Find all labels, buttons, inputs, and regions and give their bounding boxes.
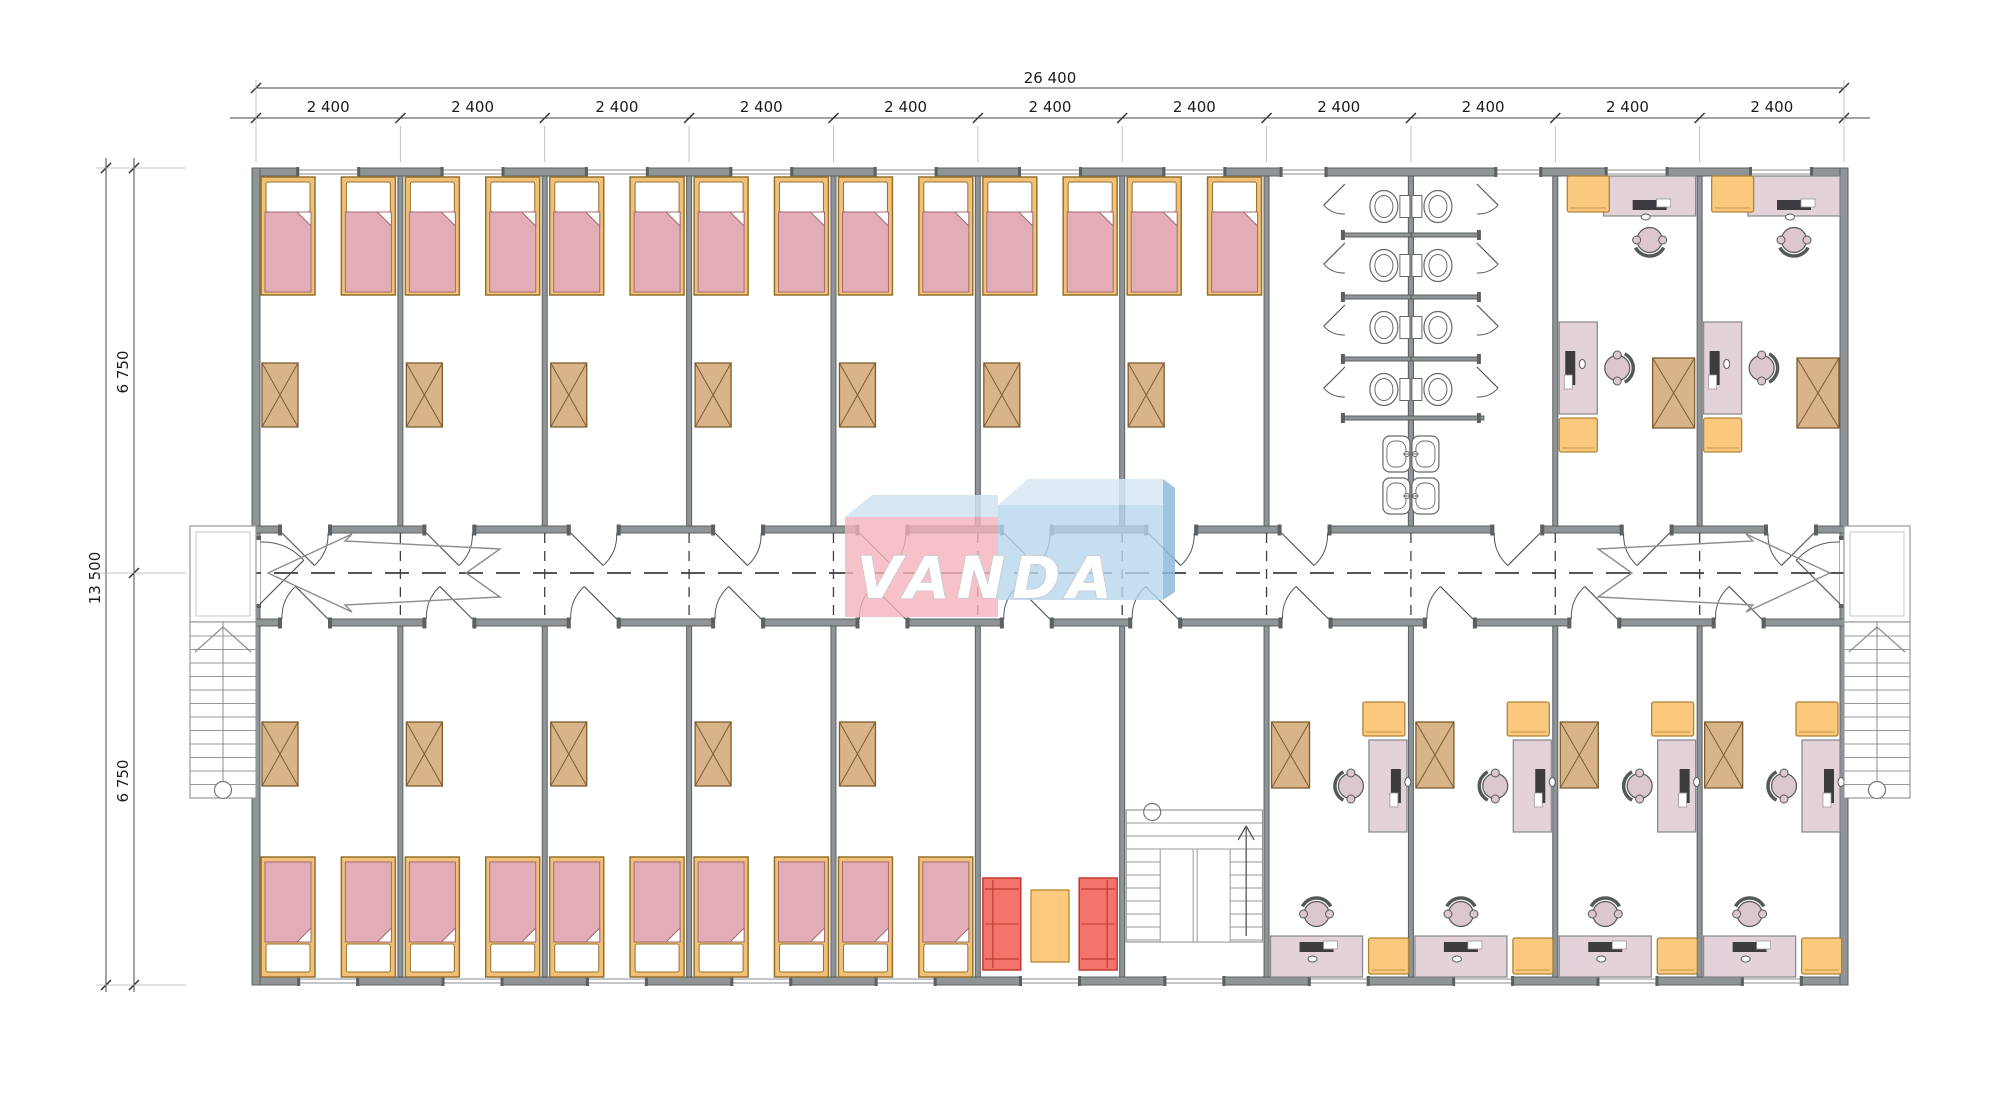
logo-left-top-face (845, 495, 998, 517)
bed (486, 177, 540, 295)
door-swing (1324, 184, 1345, 214)
storage-cabinet (1802, 938, 1842, 974)
wardrobe (1272, 722, 1310, 788)
bed (630, 857, 684, 977)
bed (486, 857, 540, 977)
door-swing (426, 586, 472, 619)
computer (1679, 769, 1700, 807)
bed (774, 857, 828, 977)
dimension-label: 6 750 (114, 351, 132, 394)
partition-wall (398, 626, 403, 977)
logo-right-top-face (998, 479, 1163, 505)
coffee-table (1031, 890, 1069, 962)
office-chair (1633, 228, 1667, 257)
bathroom-central-wall (1408, 176, 1413, 526)
window (1162, 167, 1226, 177)
door-swing (1477, 184, 1498, 214)
wardrobe (262, 722, 298, 786)
dimension-label: 2 400 (1462, 98, 1505, 116)
bed (630, 177, 684, 295)
bed (261, 857, 315, 977)
partition-wall (1408, 626, 1413, 977)
bed (1208, 177, 1262, 295)
dimension-label: 6 750 (114, 760, 132, 803)
window (441, 167, 505, 177)
desk (1704, 322, 1742, 414)
partition-wall (831, 626, 836, 977)
window (1163, 976, 1225, 986)
partition-wall (398, 176, 403, 526)
wardrobe (695, 722, 731, 786)
stall-partition (1343, 416, 1484, 420)
door-swing (282, 586, 328, 619)
external-staircase-left (190, 526, 256, 799)
bed (838, 177, 892, 295)
office-chair (1777, 228, 1811, 257)
office-chair (1749, 351, 1778, 385)
desk (1802, 740, 1840, 832)
partition-wall (1120, 176, 1125, 526)
bed (1127, 177, 1181, 295)
sofa (983, 878, 1021, 970)
storage-cabinet (1704, 418, 1742, 452)
door-swing (1494, 533, 1540, 566)
dimension-label: 2 400 (1750, 98, 1793, 116)
stall-partition (1343, 295, 1411, 299)
dimension-label: 2 400 (1173, 98, 1216, 116)
wardrobe (839, 722, 875, 786)
office-chair (1300, 898, 1334, 926)
bed (341, 857, 395, 977)
window (1494, 167, 1542, 177)
stall-partition (1343, 357, 1411, 361)
dimension-label: 13 500 (86, 552, 104, 605)
bed (550, 857, 604, 977)
partition-wall (1697, 176, 1702, 526)
door-swing (1324, 367, 1345, 397)
dimension-label: 2 400 (884, 98, 927, 116)
door-swing (426, 533, 472, 566)
computer (1777, 199, 1815, 220)
storage-cabinet (1567, 176, 1609, 212)
door-swing (1282, 533, 1328, 566)
dimension-label: 2 400 (1029, 98, 1072, 116)
partition-wall (1264, 176, 1269, 526)
bed (694, 857, 748, 977)
door-swing (1477, 243, 1498, 273)
storage-cabinet (1657, 938, 1697, 974)
office-chair (1444, 898, 1478, 926)
partition-wall (1697, 626, 1702, 977)
partition-wall (975, 626, 980, 977)
bed (261, 177, 315, 295)
partition-wall (1120, 626, 1125, 977)
desk (1559, 322, 1597, 414)
window (874, 167, 938, 177)
office-chair (1605, 351, 1634, 385)
external-staircase-right (1844, 526, 1910, 799)
watermark-text: VANDA (857, 544, 1119, 612)
storage-cabinet (1712, 176, 1754, 212)
wardrobe (1560, 722, 1598, 788)
wardrobe (1705, 722, 1743, 788)
partition-wall (1553, 626, 1558, 977)
wardrobe (262, 363, 298, 427)
bed (405, 857, 459, 977)
storage-cabinet (1513, 938, 1553, 974)
storage-cabinet (1507, 702, 1549, 736)
office-chair (1479, 769, 1507, 803)
storage-cabinet (1652, 702, 1694, 736)
dimension-label: 2 400 (1606, 98, 1649, 116)
wardrobe (1653, 358, 1695, 428)
bed (550, 177, 604, 295)
door-swing (715, 586, 761, 619)
logo-right-side-face (1163, 479, 1175, 600)
door-swing (282, 533, 328, 566)
partition-wall (687, 176, 692, 526)
dimension-label: 2 400 (1317, 98, 1360, 116)
partition-wall (831, 176, 836, 526)
door-swing (1477, 367, 1498, 397)
door-swing (1282, 586, 1328, 619)
floor-plan-svg: 26 4002 4002 4002 4002 4002 4002 4002 40… (0, 0, 2000, 1099)
storage-cabinet (1369, 938, 1409, 974)
door-swing (1624, 533, 1670, 566)
window (1018, 167, 1082, 177)
office-chair (1335, 769, 1363, 803)
dimension-label: 2 400 (307, 98, 350, 116)
office-chair (1588, 898, 1622, 927)
window (729, 167, 793, 177)
sofa (1079, 878, 1117, 970)
door-swing (1427, 586, 1473, 619)
vanda-logo: VANDA (845, 479, 1175, 617)
wardrobe (695, 363, 731, 427)
dimension-label: 2 400 (740, 98, 783, 116)
storage-cabinet (1796, 702, 1838, 736)
door-swing (1768, 533, 1814, 566)
computer (1534, 769, 1555, 807)
window (1280, 167, 1328, 177)
wardrobe (1416, 722, 1454, 788)
partition-wall (1264, 626, 1269, 977)
floorplan-canvas: 26 4002 4002 4002 4002 4002 4002 4002 40… (0, 0, 2000, 1099)
bed (919, 857, 973, 977)
wardrobe (406, 363, 442, 427)
door-swing (571, 586, 617, 619)
desk (1513, 740, 1551, 832)
partition-wall (542, 626, 547, 977)
bed (341, 177, 395, 295)
wardrobe (1797, 358, 1839, 428)
office-chair (1733, 898, 1767, 927)
office-chair (1624, 769, 1652, 803)
dimension-label: 26 400 (1024, 69, 1077, 87)
wardrobe (1128, 363, 1164, 427)
door-swing (571, 533, 617, 566)
bed (838, 857, 892, 977)
partition-wall (1553, 176, 1558, 526)
door-swing (715, 533, 761, 566)
bed (405, 177, 459, 295)
wardrobe (551, 363, 587, 427)
door-swing (1477, 305, 1498, 335)
dimension-label: 2 400 (595, 98, 638, 116)
desk (1369, 740, 1407, 832)
bed (919, 177, 973, 295)
wardrobe (839, 363, 875, 427)
dimension-label: 2 400 (451, 98, 494, 116)
office-chair (1768, 769, 1797, 803)
door-swing (1324, 305, 1345, 335)
computer (1390, 769, 1411, 807)
partition-wall (542, 176, 547, 526)
wardrobe (551, 722, 587, 786)
wardrobe (984, 363, 1020, 427)
storage-cabinet (1363, 702, 1405, 736)
door-swing (1324, 243, 1345, 273)
stall-partition (1411, 357, 1479, 361)
window (296, 167, 360, 177)
bed (774, 177, 828, 295)
stall-partition (1343, 233, 1411, 237)
storage-cabinet (1559, 418, 1597, 452)
door-swing (1571, 586, 1617, 619)
partition-wall (687, 626, 692, 977)
computer (1633, 199, 1671, 220)
desk (1658, 740, 1696, 832)
bed (1063, 177, 1117, 295)
window (585, 167, 649, 177)
wardrobe (406, 722, 442, 786)
bed (983, 177, 1037, 295)
internal-staircase (1126, 804, 1262, 943)
stall-partition (1411, 233, 1479, 237)
bed (694, 177, 748, 295)
window (1019, 976, 1081, 986)
stall-partition (1411, 295, 1479, 299)
partition-wall (975, 176, 980, 526)
